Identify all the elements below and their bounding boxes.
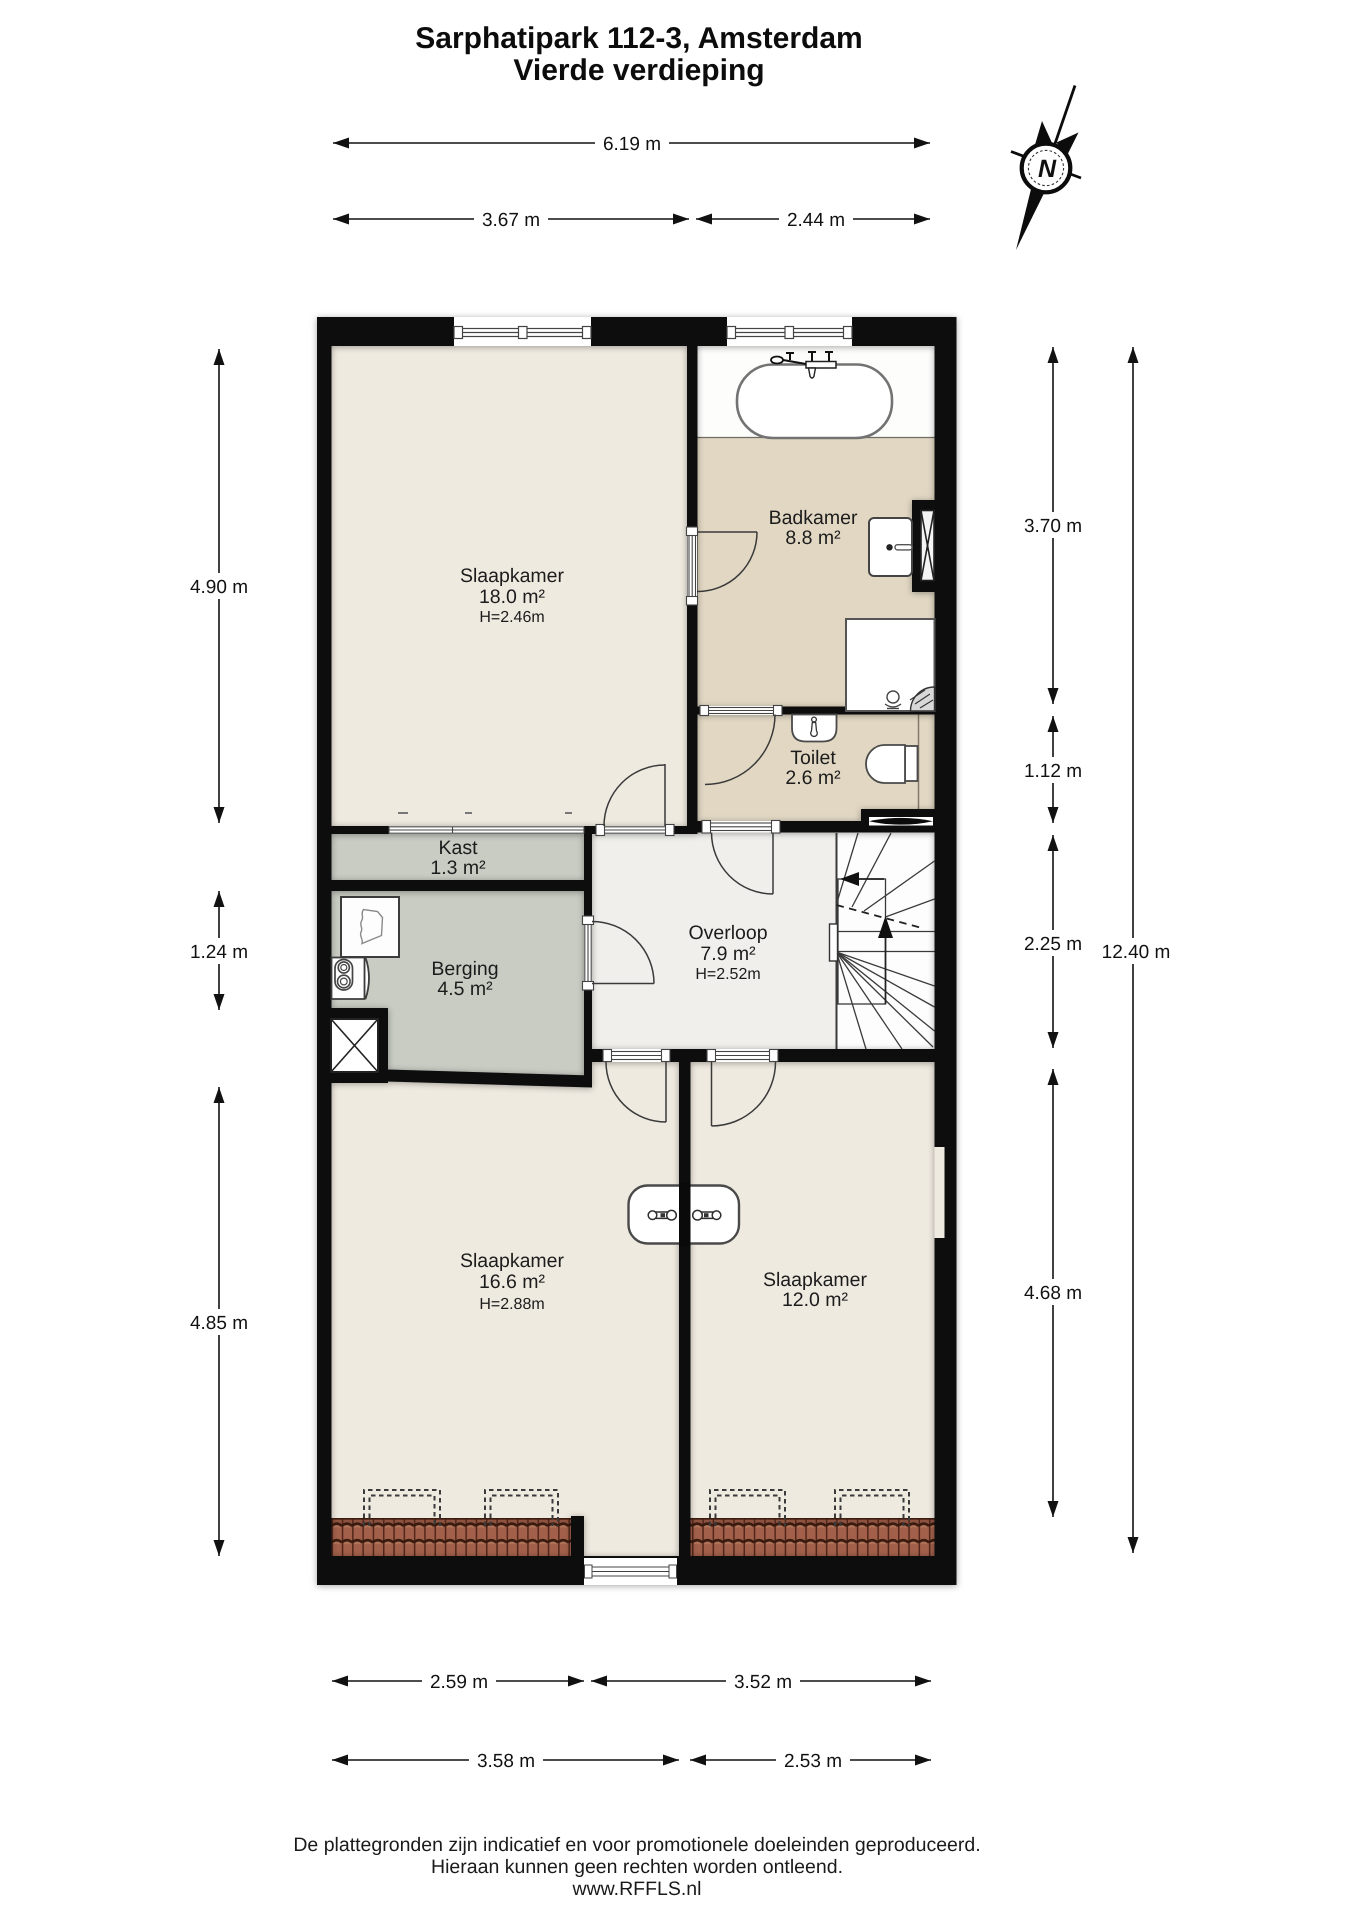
svg-text:Toilet: Toilet	[790, 747, 836, 769]
svg-text:7.9 m²: 7.9 m²	[700, 943, 756, 965]
svg-text:4.90 m: 4.90 m	[190, 577, 248, 598]
svg-text:H=2.88m: H=2.88m	[479, 1296, 544, 1313]
svg-text:3.70 m: 3.70 m	[1024, 516, 1082, 537]
svg-text:N: N	[1038, 155, 1057, 183]
svg-text:Vierde verdieping: Vierde verdieping	[513, 54, 764, 87]
svg-text:3.67 m: 3.67 m	[482, 210, 540, 231]
svg-text:H=2.52m: H=2.52m	[695, 966, 760, 983]
svg-text:4.68 m: 4.68 m	[1024, 1283, 1082, 1304]
svg-text:De plattegronden zijn indicati: De plattegronden zijn indicatief en voor…	[293, 1834, 980, 1856]
svg-text:12.0 m²: 12.0 m²	[782, 1289, 849, 1311]
svg-text:1.3 m²: 1.3 m²	[430, 857, 486, 879]
svg-text:12.40 m: 12.40 m	[1102, 942, 1171, 963]
svg-text:1.12 m: 1.12 m	[1024, 761, 1082, 782]
svg-text:1.24 m: 1.24 m	[190, 942, 248, 963]
svg-text:Hieraan kunnen geen rechten wo: Hieraan kunnen geen rechten worden ontle…	[431, 1856, 843, 1878]
svg-text:Slaapkamer: Slaapkamer	[763, 1269, 868, 1291]
svg-text:2.25 m: 2.25 m	[1024, 934, 1082, 955]
svg-text:8.8 m²: 8.8 m²	[785, 527, 841, 549]
svg-text:Badkamer: Badkamer	[769, 507, 858, 529]
svg-text:16.6 m²: 16.6 m²	[479, 1271, 546, 1293]
svg-text:H=2.46m: H=2.46m	[479, 609, 544, 626]
svg-text:Slaapkamer: Slaapkamer	[460, 565, 565, 587]
svg-text:Overloop: Overloop	[688, 922, 767, 944]
svg-text:2.59 m: 2.59 m	[430, 1672, 488, 1693]
svg-text:6.19 m: 6.19 m	[603, 134, 661, 155]
svg-text:18.0 m²: 18.0 m²	[479, 586, 546, 608]
svg-text:3.52 m: 3.52 m	[734, 1672, 792, 1693]
svg-text:3.58 m: 3.58 m	[477, 1751, 535, 1772]
svg-text:Sarphatipark 112-3, Amsterdam: Sarphatipark 112-3, Amsterdam	[415, 22, 862, 55]
svg-text:4.5 m²: 4.5 m²	[437, 978, 493, 1000]
svg-text:Slaapkamer: Slaapkamer	[460, 1250, 565, 1272]
svg-text:2.53 m: 2.53 m	[784, 1751, 842, 1772]
svg-text:Kast: Kast	[438, 837, 478, 859]
svg-text:2.44 m: 2.44 m	[787, 210, 845, 231]
svg-text:4.85 m: 4.85 m	[190, 1313, 248, 1334]
svg-text:2.6 m²: 2.6 m²	[785, 767, 841, 789]
svg-text:Berging: Berging	[431, 958, 498, 980]
svg-text:www.RFFLS.nl: www.RFFLS.nl	[572, 1878, 702, 1900]
